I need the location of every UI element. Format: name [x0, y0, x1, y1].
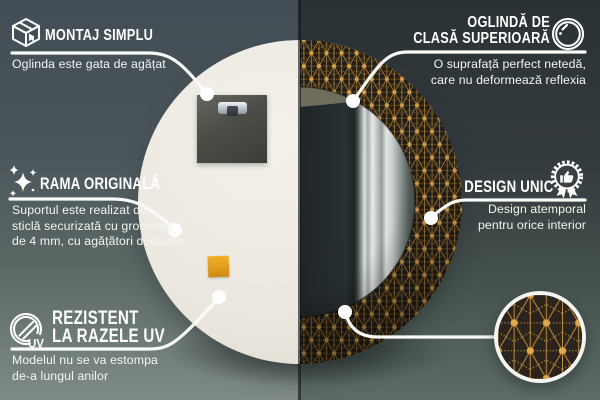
uv-circle-icon: UV — [7, 310, 51, 354]
product-infographic: MONTAJ SIMPLU Oglinda este gata de agăța… — [0, 0, 600, 400]
award-badge-icon — [548, 160, 586, 200]
box-icon — [9, 16, 43, 50]
oglinda-desc: O suprafață perfect netedă, care nu defo… — [431, 57, 586, 88]
pattern-detail — [498, 295, 582, 379]
mirror-circle-icon — [549, 15, 587, 53]
design-desc: Design atemporal pentru orice interior — [478, 202, 586, 233]
rezistent-desc: Modelul nu se va estompa de-a lungul ani… — [12, 353, 158, 384]
rezistent-title: REZISTENT LA RAZELE UV — [52, 310, 165, 345]
scene-divider — [298, 0, 301, 400]
montaj-title: MONTAJ SIMPLU — [45, 27, 153, 44]
oglinda-title: OGLINDĂ DE CLASĂ SUPERIOARĂ — [413, 15, 550, 47]
hanger-plate — [197, 95, 267, 163]
design-title: DESIGN UNIC — [464, 179, 553, 196]
hanger-hook-slot — [227, 106, 238, 116]
rama-title: RAMA ORIGINALĂ — [40, 176, 160, 193]
rama-desc: Suportul este realizat din sticlă securi… — [12, 203, 184, 250]
montaj-desc: Oglinda este gata de agățat — [12, 57, 166, 73]
label-sticker — [208, 256, 230, 278]
sparkles-icon — [6, 163, 40, 199]
pattern-detail-bubble — [494, 291, 586, 383]
hanger-hook — [218, 102, 247, 114]
uv-icon-label: UV — [28, 339, 44, 351]
